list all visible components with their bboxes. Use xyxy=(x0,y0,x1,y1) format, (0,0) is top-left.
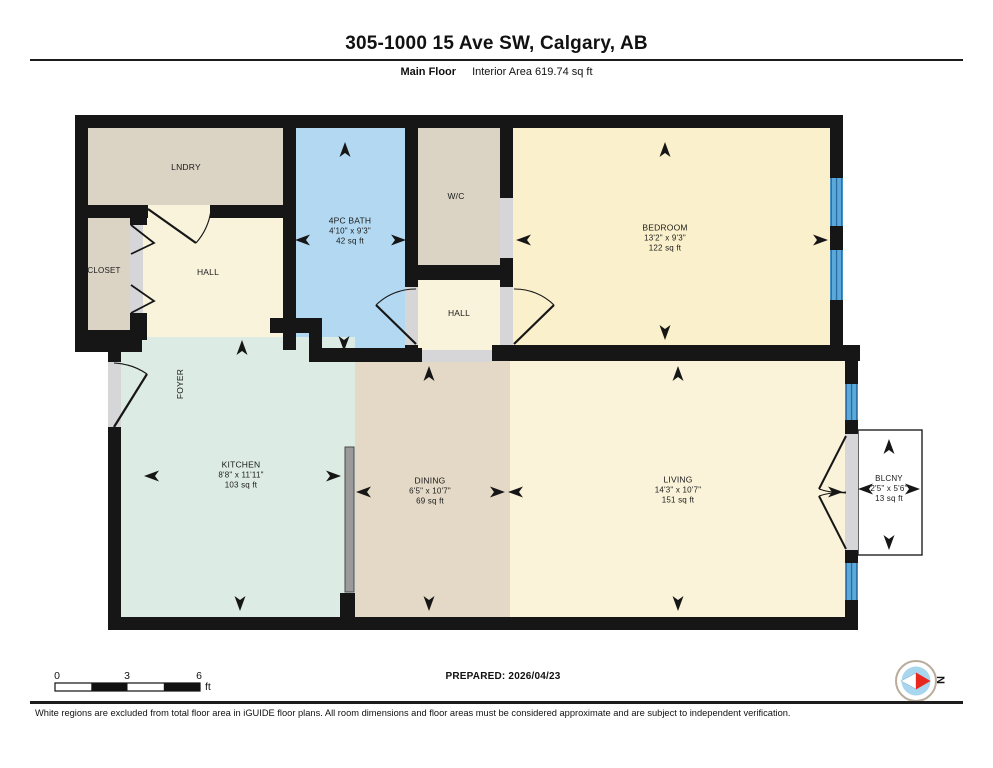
room-label-closet: CLOSET xyxy=(87,266,120,277)
room-label-hall-center: HALL xyxy=(448,308,470,319)
scale-bar xyxy=(55,683,200,691)
scale-tick-0: 0 xyxy=(54,670,60,682)
footer-divider xyxy=(30,701,963,704)
room-label-bedroom: BEDROOM 13'2" x 9'3" 122 sq ft xyxy=(642,222,687,254)
compass-icon xyxy=(896,661,936,701)
room-label-foyer: FOYER xyxy=(175,369,186,399)
room-label-bath: 4PC BATH 4'10" x 9'3" 42 sq ft xyxy=(329,215,372,247)
floorplan-drawing xyxy=(0,0,993,768)
floorplan-page: 305-1000 15 Ave SW, Calgary, AB Main Flo… xyxy=(0,0,993,768)
room-label-blcny: BLCNY 2'5" x 5'6" 13 sq ft xyxy=(870,474,907,504)
window-bedroom-2 xyxy=(830,250,843,300)
compass-north-label: N xyxy=(934,676,946,684)
scale-tick-3: 3 xyxy=(124,670,130,682)
window-living-1 xyxy=(845,384,858,420)
window-bedroom-1 xyxy=(830,178,843,226)
room-label-lndry: LNDRY xyxy=(171,162,201,173)
scale-unit: ft xyxy=(205,681,211,693)
room-label-hall-upper: HALL xyxy=(197,267,219,278)
room-label-dining: DINING 6'5" x 10'7" 69 sq ft xyxy=(409,475,451,507)
room-label-wc: W/C xyxy=(447,191,464,202)
footer-disclaimer: White regions are excluded from total fl… xyxy=(35,708,965,718)
prepared-date: PREPARED: 2026/04/23 xyxy=(353,671,653,682)
kitchen-counter xyxy=(345,447,354,592)
room-label-living: LIVING 14'3" x 10'7" 151 sq ft xyxy=(655,474,701,506)
room-label-kitchen: KITCHEN 8'8" x 11'11" 103 sq ft xyxy=(218,459,263,491)
scale-tick-6: 6 xyxy=(196,670,202,682)
window-living-2 xyxy=(845,563,858,600)
